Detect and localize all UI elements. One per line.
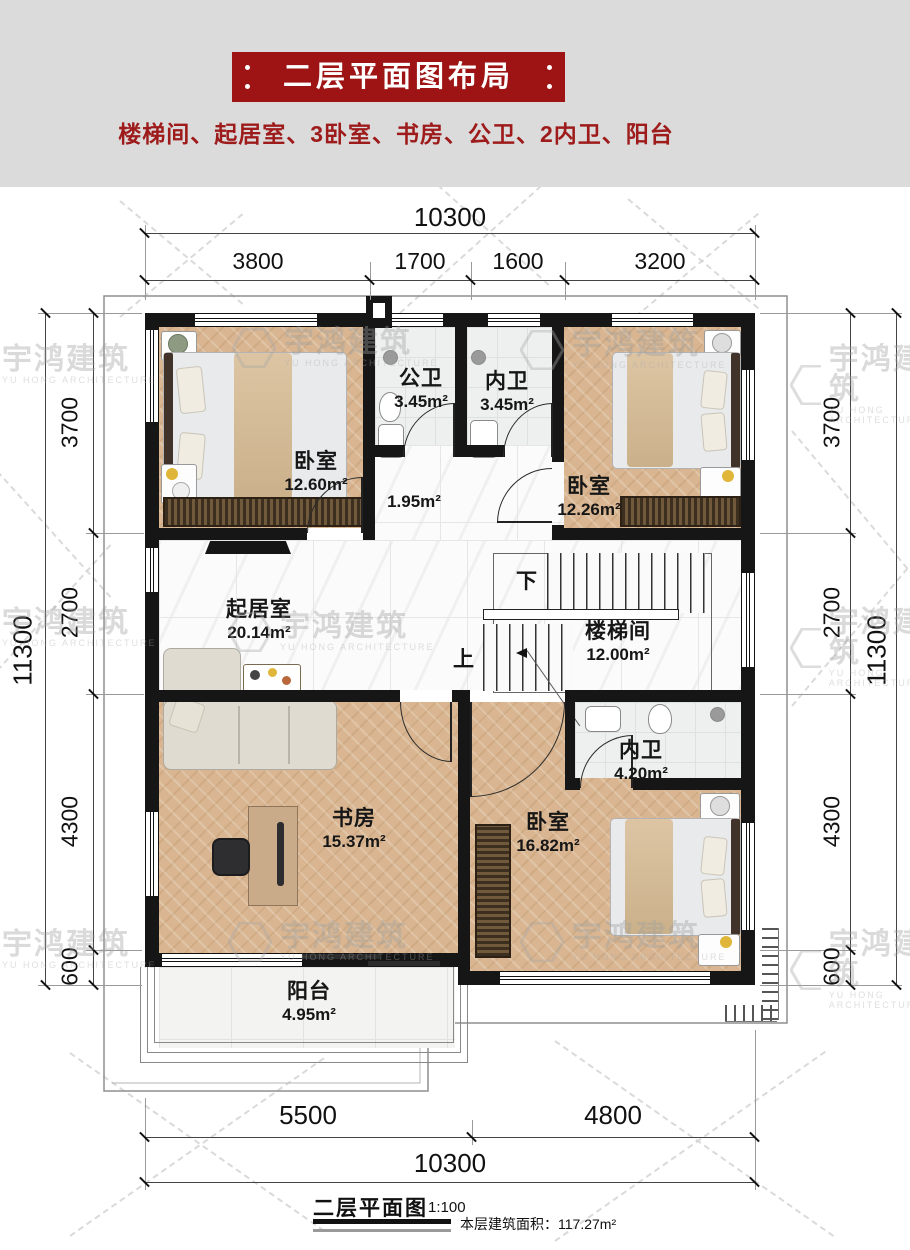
room-label-bedroom2: 卧室 12.26m²	[557, 470, 620, 520]
room-label-bedroom1: 卧室 12.60m²	[284, 445, 347, 495]
dim-extension	[760, 313, 902, 314]
dim-line	[93, 313, 94, 985]
room-label-bath-inner2: 内卫 4.20m²	[614, 734, 668, 784]
room-name: 起居室	[226, 593, 292, 623]
room-name: 卧室	[284, 445, 347, 475]
wall	[145, 528, 307, 540]
wall	[565, 778, 580, 790]
table-item	[250, 670, 260, 680]
wall	[458, 702, 470, 967]
flowers	[722, 470, 734, 482]
dim-line	[145, 1182, 755, 1183]
flowers	[166, 468, 178, 480]
window	[145, 330, 159, 422]
dim-right-total: 11300	[862, 596, 893, 706]
dim-bottom-2: 4800	[553, 1100, 673, 1131]
toilet	[648, 704, 672, 734]
room-area: 12.60m²	[284, 475, 347, 495]
window	[392, 313, 443, 327]
room-area: 20.14m²	[226, 623, 292, 643]
room-label-bedroom3: 卧室 16.82m²	[516, 806, 579, 856]
blanket	[627, 353, 673, 467]
window	[162, 953, 302, 967]
dim-line	[145, 280, 755, 281]
dim-line	[850, 313, 851, 985]
floor-area-text: 本层建筑面积：117.27m²	[460, 1214, 616, 1234]
wardrobe-bedroom3	[475, 824, 511, 958]
dim-left-2: 2700	[57, 563, 84, 663]
sliding-door	[302, 954, 380, 959]
dim-line	[896, 313, 897, 985]
title-underline-black	[313, 1219, 451, 1224]
window	[500, 971, 710, 985]
office-chair	[212, 838, 250, 876]
room-name: 公卫	[394, 362, 448, 392]
wall	[375, 445, 405, 457]
dim-extension	[760, 694, 856, 695]
door-leaf	[361, 477, 363, 533]
blanket	[234, 353, 292, 500]
dim-left-3: 4300	[57, 772, 84, 872]
room-name: 卧室	[516, 806, 579, 836]
room-area: 15.37m²	[322, 832, 385, 852]
room-label-bath-inner1: 内卫 3.45m²	[480, 365, 534, 415]
window	[741, 573, 755, 667]
dim-extension	[760, 533, 856, 534]
wall	[552, 525, 564, 540]
dim-line	[145, 1137, 755, 1138]
stair-down-label: 下	[516, 565, 538, 595]
shower-head	[471, 350, 486, 365]
nightstand	[698, 934, 740, 966]
bed-bedroom3	[610, 818, 741, 936]
stair-up-label: 上	[453, 643, 475, 673]
eave-hatch	[725, 1005, 777, 1022]
sofa-cushion-line	[238, 706, 240, 764]
room-label-bath-public: 公卫 3.45m²	[394, 362, 448, 412]
dim-top-3: 1600	[458, 248, 578, 275]
sliding-door	[368, 961, 440, 966]
wardrobe-bedroom2	[620, 496, 741, 527]
door-leaf	[497, 521, 552, 523]
window	[488, 313, 540, 327]
room-label-balcony: 阳台 4.95m²	[282, 975, 336, 1025]
flowers	[720, 936, 732, 948]
room-name: 阳台	[282, 975, 336, 1005]
window	[741, 823, 755, 930]
room-area: 1.95m²	[387, 492, 441, 512]
room-area: 4.95m²	[282, 1005, 336, 1025]
dim-right-3: 4300	[819, 772, 846, 872]
stair-direction-arrow	[516, 648, 527, 658]
blanket	[625, 819, 673, 934]
room-area: 3.45m²	[480, 395, 534, 415]
window	[741, 370, 755, 460]
room-name: 卧室	[557, 470, 620, 500]
floor-plan-page: 二层平面图布局 楼梯间、起居室、3卧室、书房、公卫、2内卫、阳台	[0, 0, 910, 1250]
flue-inner	[373, 303, 385, 318]
wall	[565, 690, 755, 702]
wall	[455, 327, 467, 457]
window	[195, 313, 317, 327]
plant	[710, 796, 730, 816]
table-item	[282, 676, 291, 685]
dim-extension	[472, 1120, 473, 1145]
window	[612, 313, 693, 327]
room-name: 内卫	[480, 365, 534, 395]
pillow	[700, 836, 728, 876]
stair-lower-flight	[483, 624, 573, 691]
pillow	[700, 412, 727, 452]
dim-left-total: 11300	[8, 596, 39, 706]
room-name: 内卫	[614, 734, 668, 764]
dim-extension	[38, 313, 142, 314]
dim-line	[145, 233, 755, 234]
dim-line	[45, 313, 46, 985]
room-label-hallway: 1.95m²	[387, 492, 441, 512]
room-label-stairwell: 楼梯间 12.00m²	[585, 615, 651, 665]
wall	[565, 702, 575, 790]
dim-right-2: 2700	[819, 563, 846, 663]
window	[145, 812, 159, 896]
door-leaf	[450, 702, 452, 762]
dim-top-1: 3800	[198, 248, 318, 275]
door-leaf	[453, 403, 455, 457]
wall	[467, 445, 505, 457]
dim-bottom-total: 10300	[390, 1148, 510, 1179]
dim-left-1: 3700	[57, 373, 84, 473]
window	[145, 548, 159, 592]
plant	[712, 333, 732, 353]
plant	[168, 334, 188, 354]
wall	[552, 327, 564, 462]
dim-extension	[38, 985, 142, 986]
title-underline-gray	[313, 1229, 451, 1232]
door-leaf	[470, 702, 472, 797]
dim-top-4: 3200	[600, 248, 720, 275]
bed-bedroom2	[612, 352, 741, 469]
headboard	[731, 819, 740, 935]
wall	[452, 690, 470, 702]
room-area: 4.20m²	[614, 764, 668, 784]
wall	[145, 690, 400, 702]
drawing-title: 二层平面图	[313, 1192, 428, 1222]
room-area: 12.26m²	[557, 500, 620, 520]
dim-right-4: 600	[819, 917, 846, 1017]
pillow	[700, 370, 728, 410]
desk	[248, 806, 298, 906]
door-leaf	[551, 403, 553, 457]
headboard	[731, 353, 740, 468]
dim-extension	[755, 1030, 756, 1190]
room-label-living: 起居室 20.14m²	[226, 593, 292, 643]
sofa-cushion-line	[288, 706, 290, 764]
dim-right-1: 3700	[819, 373, 846, 473]
room-name: 楼梯间	[585, 615, 651, 645]
dim-left-4: 600	[57, 917, 84, 1017]
room-area: 3.45m²	[394, 392, 448, 412]
pillow	[700, 878, 727, 918]
room-label-study: 书房 15.37m²	[322, 802, 385, 852]
stair-up-text: 上	[453, 643, 475, 673]
dim-bottom-1: 5500	[248, 1100, 368, 1131]
laptop	[277, 822, 284, 886]
dim-extension	[145, 1098, 146, 1190]
tv-console	[205, 541, 291, 554]
pillow	[176, 366, 207, 414]
wall	[564, 528, 741, 540]
dim-top-total: 10300	[390, 202, 510, 233]
shower-head	[710, 707, 725, 722]
stair-down-text: 下	[516, 565, 538, 595]
wall	[363, 327, 375, 540]
room-name: 书房	[322, 802, 385, 832]
sink	[585, 706, 621, 732]
table-item	[268, 668, 277, 677]
stair-upper-flight	[547, 553, 705, 613]
room-area: 12.00m²	[585, 645, 651, 665]
room-area: 16.82m²	[516, 836, 579, 856]
